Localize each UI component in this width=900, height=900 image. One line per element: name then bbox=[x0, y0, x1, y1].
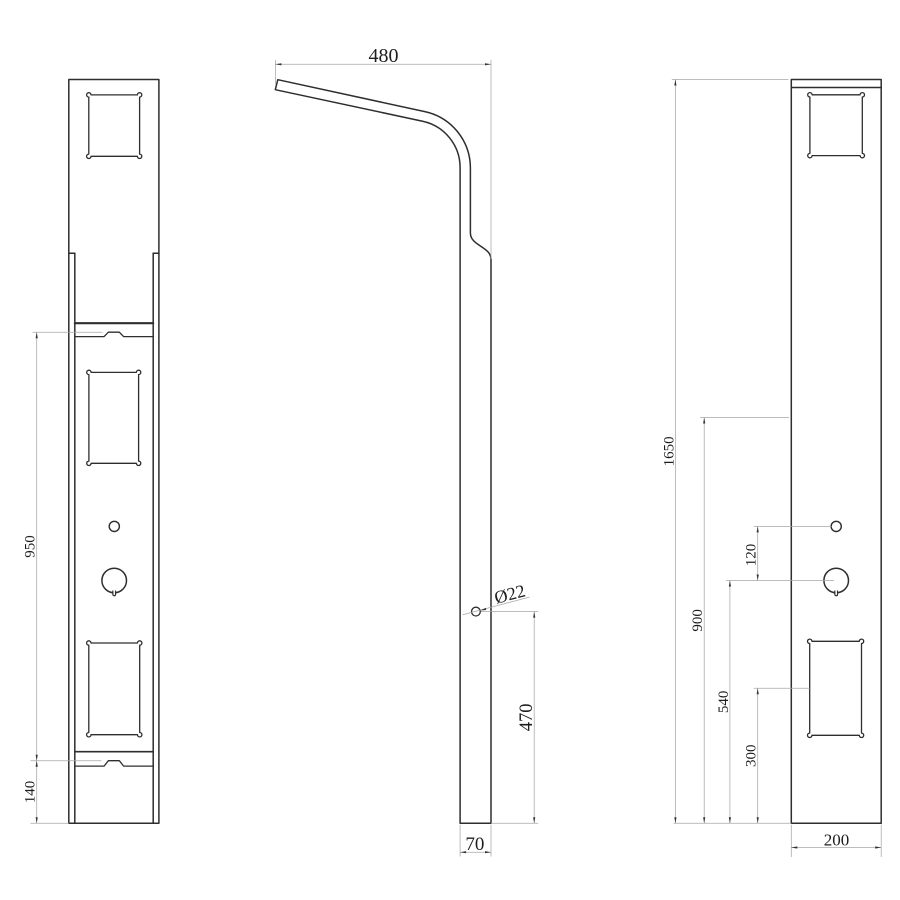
svg-text:540: 540 bbox=[716, 691, 732, 714]
svg-text:1650: 1650 bbox=[661, 436, 677, 466]
svg-text:950: 950 bbox=[22, 535, 38, 558]
svg-text:300: 300 bbox=[744, 745, 760, 768]
svg-text:900: 900 bbox=[690, 609, 706, 632]
svg-text:70: 70 bbox=[465, 834, 484, 855]
svg-text:140: 140 bbox=[22, 781, 38, 804]
svg-text:470: 470 bbox=[517, 704, 537, 732]
svg-text:200: 200 bbox=[824, 831, 850, 850]
svg-text:480: 480 bbox=[369, 45, 399, 67]
svg-text:120: 120 bbox=[744, 544, 760, 567]
